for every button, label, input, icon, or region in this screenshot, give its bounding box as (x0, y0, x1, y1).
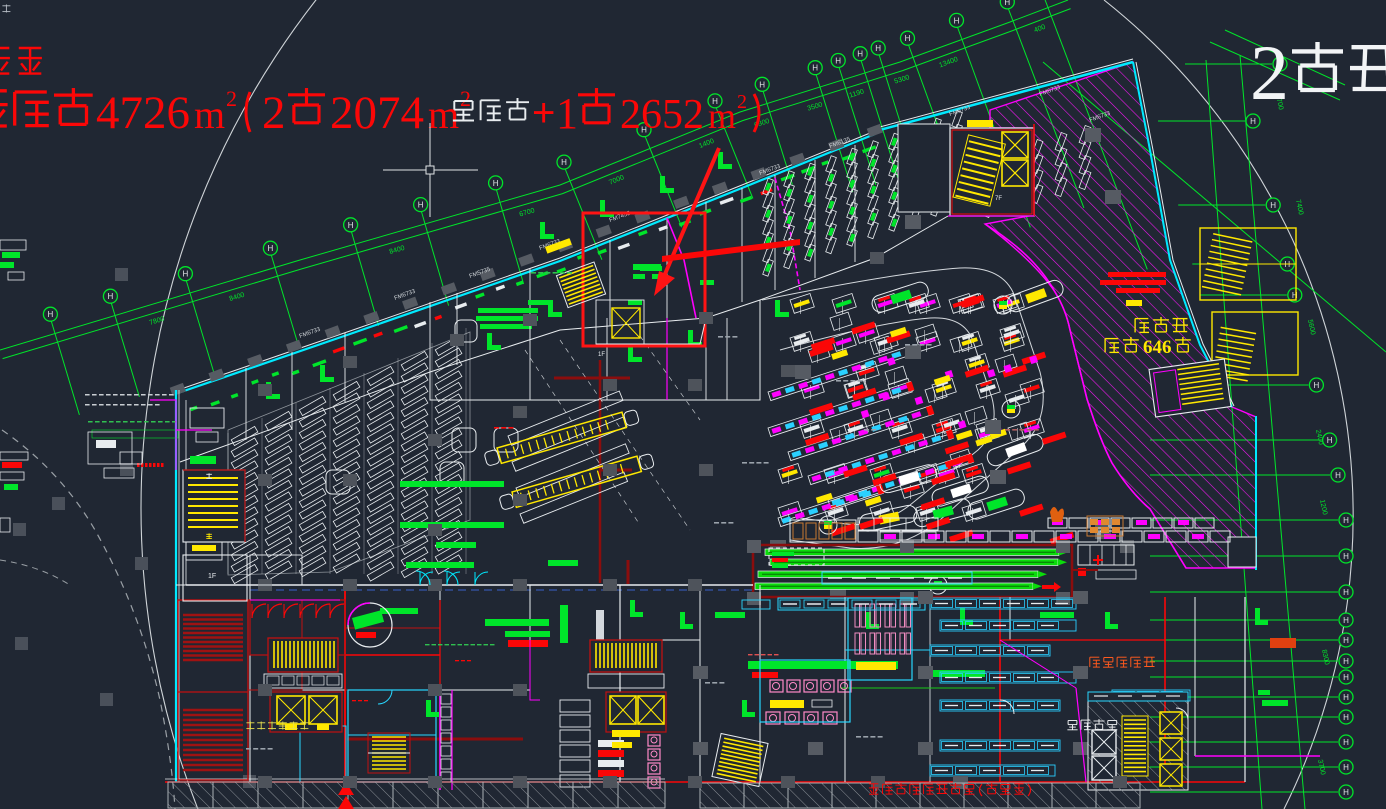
svg-text:H: H (561, 158, 567, 167)
svg-text:2: 2 (226, 86, 237, 111)
svg-text:H: H (348, 221, 354, 230)
svg-text:7F: 7F (995, 196, 1002, 202)
svg-text:H: H (1343, 788, 1349, 797)
svg-text:m: m (194, 92, 225, 137)
svg-text:H: H (418, 201, 424, 210)
svg-text:H: H (268, 244, 274, 253)
svg-text:H: H (1343, 657, 1349, 666)
svg-text:H: H (812, 64, 818, 73)
svg-text:2: 2 (737, 91, 747, 113)
svg-text:H: H (1327, 436, 1333, 445)
svg-text:H: H (1343, 588, 1349, 597)
svg-text:H: H (1343, 713, 1349, 722)
svg-text:2652: 2652 (620, 92, 704, 138)
svg-text:H: H (108, 292, 114, 301)
svg-text:H: H (954, 16, 960, 25)
svg-text:H: H (905, 34, 911, 43)
svg-text:H: H (1343, 738, 1349, 747)
svg-text:H: H (493, 179, 499, 188)
svg-text:2: 2 (262, 87, 286, 139)
svg-text:H: H (1343, 616, 1349, 625)
svg-text:H: H (1250, 117, 1256, 126)
svg-text:H: H (759, 80, 765, 89)
svg-text:+: + (532, 91, 555, 135)
svg-text:m: m (708, 96, 736, 136)
svg-text:H: H (1270, 201, 1276, 210)
svg-text:H: H (835, 57, 841, 66)
svg-text:H: H (1004, 0, 1010, 7)
svg-text:646: 646 (1143, 337, 1172, 358)
svg-text:H: H (1314, 381, 1320, 390)
svg-text:2: 2 (1250, 29, 1289, 116)
svg-text:H: H (1343, 636, 1349, 645)
svg-text:4726: 4726 (96, 87, 190, 139)
svg-text:H: H (857, 50, 863, 59)
svg-text:2074: 2074 (330, 87, 424, 139)
svg-text:m: m (428, 92, 459, 137)
svg-text:1F: 1F (598, 352, 605, 358)
svg-text:2: 2 (460, 86, 471, 111)
svg-text:H: H (48, 310, 54, 319)
svg-text:H: H (1343, 516, 1349, 525)
svg-text:H: H (1343, 673, 1349, 682)
svg-text:1F: 1F (208, 573, 216, 580)
svg-text:H: H (1343, 763, 1349, 772)
svg-text:1: 1 (556, 89, 578, 138)
svg-text:H: H (183, 270, 189, 279)
svg-text:H: H (1292, 291, 1298, 300)
svg-text:H: H (1335, 471, 1341, 480)
svg-text:H: H (875, 44, 881, 53)
svg-text:H: H (1343, 693, 1349, 702)
svg-text:H: H (1343, 552, 1349, 561)
